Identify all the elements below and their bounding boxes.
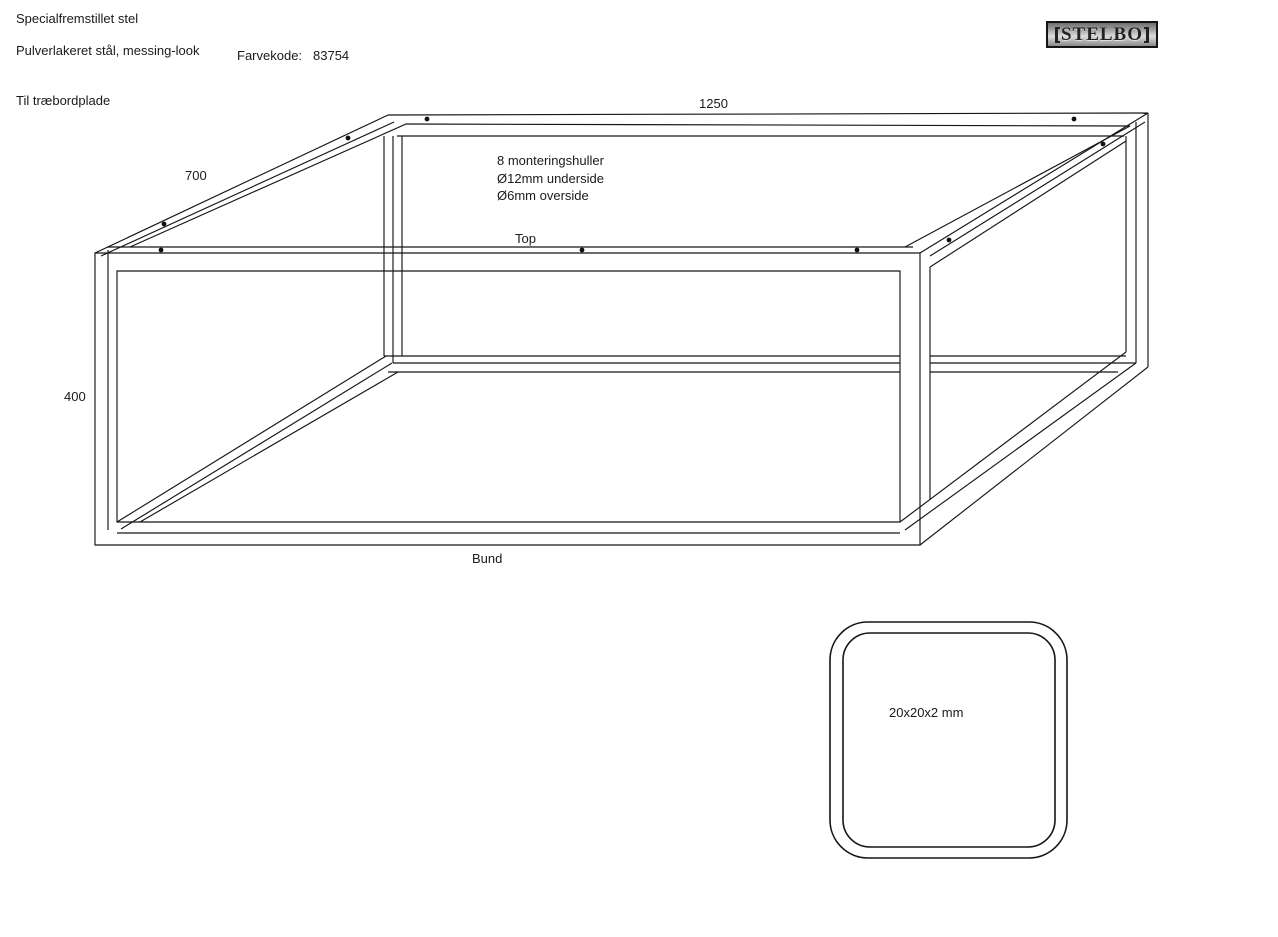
top-face-inner: [130, 124, 1130, 247]
bottom-left-rail: [117, 356, 386, 522]
mounting-hole-dot: [162, 222, 167, 227]
top-left-rail-outer: [95, 115, 388, 253]
mounting-hole-dot: [425, 117, 430, 122]
top-left-rail-mid: [101, 122, 394, 256]
mounting-hole-dot: [580, 248, 585, 253]
mounting-hole-dot: [346, 136, 351, 141]
tube-section-outer: [830, 622, 1067, 858]
mounting-hole-dot: [1101, 142, 1106, 147]
mounting-hole-dot: [947, 238, 952, 243]
bottom-right-rail: [905, 363, 1136, 530]
bottom-left-rail: [140, 372, 398, 522]
right-face-inner-top: [930, 141, 1126, 267]
mounting-hole-dot: [1072, 117, 1077, 122]
frame-wireframe: [95, 113, 1148, 545]
bottom-right-rail: [920, 367, 1148, 545]
mounting-hole-dot: [159, 248, 164, 253]
tube-cross-section: [830, 622, 1067, 858]
top-right-rail-outer: [920, 113, 1148, 253]
technical-drawing-page: { "page": { "background": "#ffffff", "li…: [0, 0, 1278, 937]
mounting-holes: [159, 117, 1106, 253]
tube-section-inner: [843, 633, 1055, 847]
frame-isometric-drawing: [0, 0, 1278, 937]
front-face-inner: [117, 271, 900, 522]
bottom-right-rail: [900, 352, 1126, 522]
top-right-rail-mid: [930, 122, 1145, 256]
top-back-rail-outer: [388, 113, 1148, 115]
mounting-hole-dot: [855, 248, 860, 253]
bottom-left-rail: [121, 363, 392, 529]
front-face-outer: [95, 253, 920, 545]
